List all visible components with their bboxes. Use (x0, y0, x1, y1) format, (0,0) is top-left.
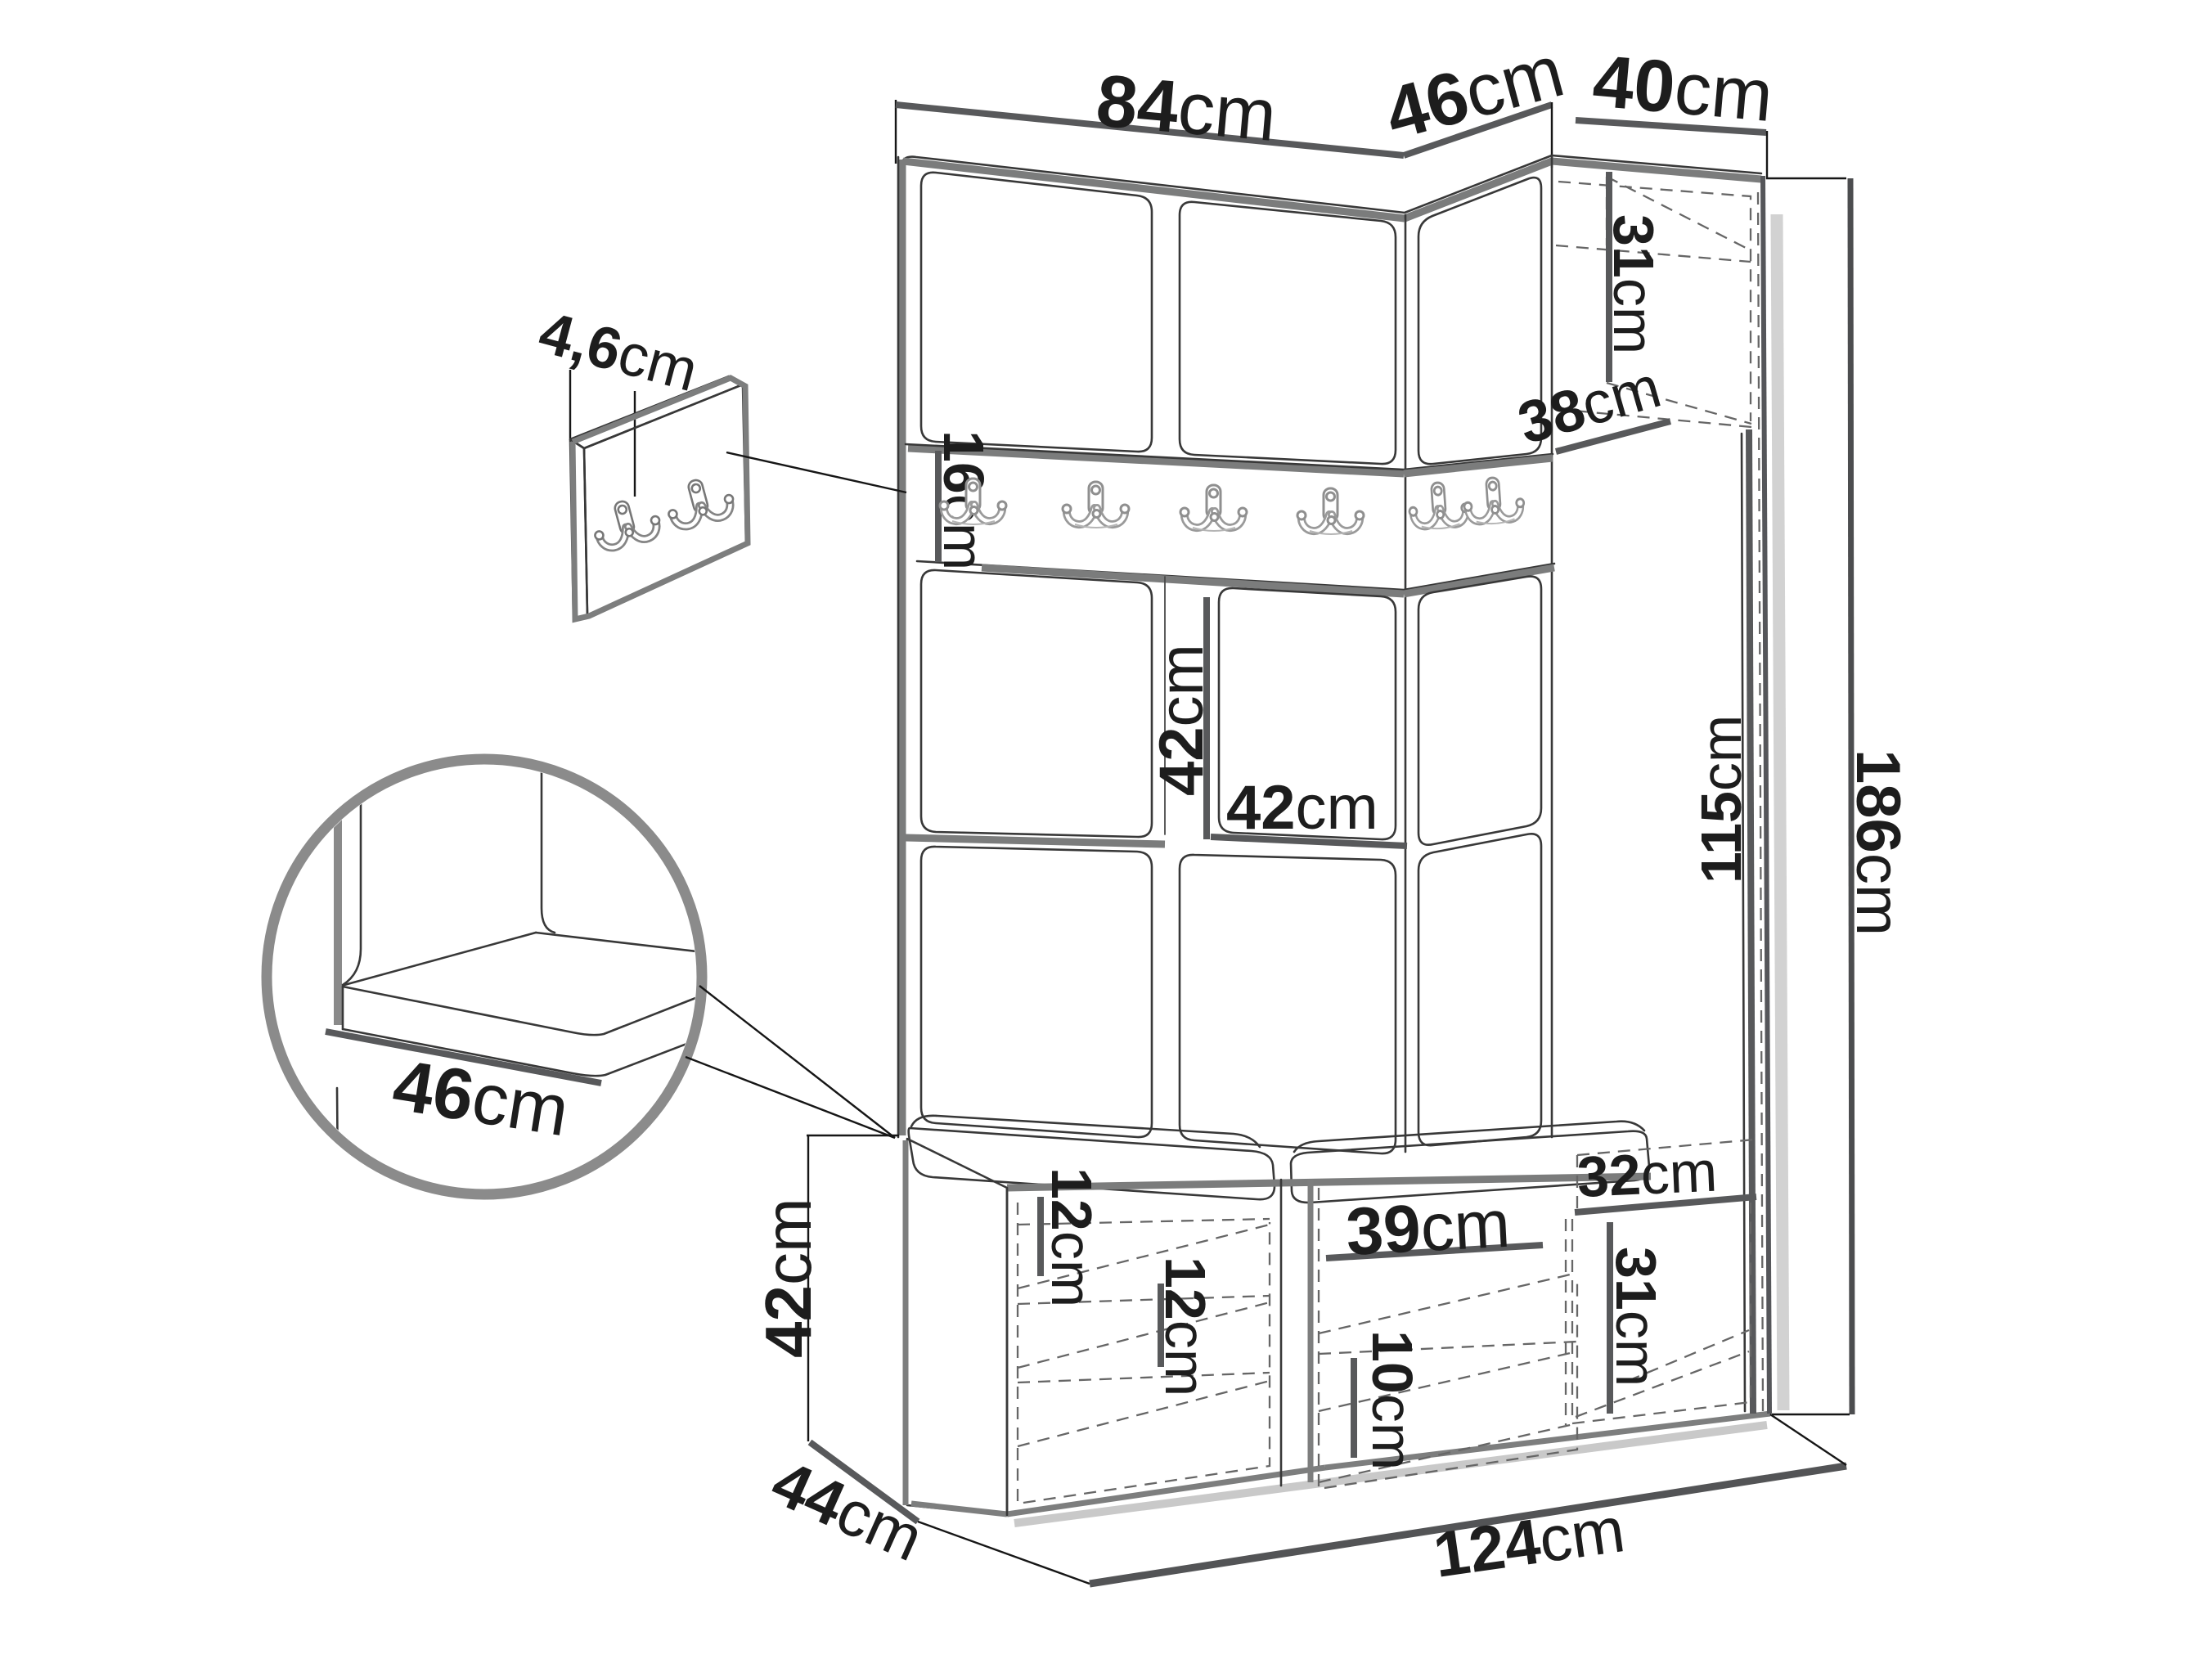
svg-text:12cm: 12cm (1153, 1257, 1217, 1396)
svg-text:115cm: 115cm (1689, 715, 1753, 883)
svg-text:32cm: 32cm (1576, 1140, 1718, 1209)
svg-text:12cm: 12cm (1040, 1167, 1104, 1307)
svg-text:31cm: 31cm (1604, 1247, 1668, 1387)
svg-text:42cm: 42cm (1226, 773, 1378, 843)
svg-text:42cm: 42cm (1147, 644, 1216, 796)
svg-text:39cm: 39cm (1344, 1187, 1512, 1270)
svg-text:10cm: 10cm (1360, 1330, 1424, 1470)
svg-text:31cm: 31cm (1602, 214, 1666, 354)
svg-text:84cm: 84cm (1093, 60, 1279, 157)
svg-text:40cm: 40cm (1589, 40, 1776, 137)
svg-text:16cm: 16cm (932, 430, 996, 570)
svg-text:42cm: 42cm (752, 1198, 825, 1358)
svg-text:186cm: 186cm (1843, 749, 1913, 936)
